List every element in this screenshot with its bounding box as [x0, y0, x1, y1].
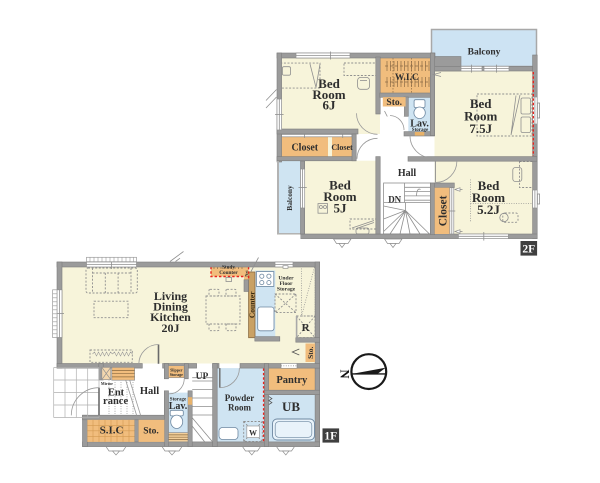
svg-text:Closet: Closet	[437, 195, 449, 226]
svg-text:Balcony: Balcony	[285, 185, 294, 211]
svg-text:5.2J: 5.2J	[477, 202, 500, 217]
svg-text:DN: DN	[388, 195, 401, 205]
svg-text:Storage: Storage	[170, 372, 183, 377]
svg-text:Room: Room	[228, 402, 251, 412]
svg-text:R: R	[302, 322, 311, 334]
svg-text:Sto.: Sto.	[386, 98, 402, 108]
svg-text:N: N	[337, 369, 351, 378]
svg-text:Closet: Closet	[291, 142, 318, 153]
svg-text:6J: 6J	[323, 98, 337, 113]
svg-text:7.5J: 7.5J	[469, 121, 492, 136]
svg-text:Net: Net	[244, 270, 249, 277]
svg-text:rance: rance	[103, 396, 128, 407]
svg-text:Balcony: Balcony	[468, 47, 501, 57]
svg-text:S.I.C: S.I.C	[100, 425, 124, 437]
svg-text:W.I.C: W.I.C	[395, 73, 419, 83]
svg-text:Hall: Hall	[140, 386, 159, 397]
svg-text:20J: 20J	[162, 321, 180, 335]
svg-text:2F: 2F	[522, 244, 535, 256]
svg-text:Lav.: Lav.	[169, 401, 188, 412]
svg-text:Sto.: Sto.	[143, 427, 159, 437]
svg-text:Mirror: Mirror	[101, 381, 113, 386]
svg-text:Hall: Hall	[398, 168, 417, 179]
svg-text:Powder: Powder	[225, 393, 255, 403]
svg-text:Counter: Counter	[247, 291, 256, 318]
svg-text:5J: 5J	[334, 201, 348, 216]
svg-text:UB: UB	[282, 399, 300, 414]
svg-text:Counter: Counter	[219, 270, 238, 276]
svg-text:Sto.: Sto.	[306, 346, 315, 358]
svg-text:W: W	[249, 429, 257, 438]
svg-text:UP: UP	[196, 372, 209, 382]
svg-text:Pantry: Pantry	[276, 375, 308, 386]
svg-text:Closet: Closet	[331, 143, 353, 152]
svg-text:Storage: Storage	[277, 287, 296, 293]
svg-text:Storage: Storage	[412, 128, 429, 133]
svg-text:1F: 1F	[324, 431, 337, 443]
